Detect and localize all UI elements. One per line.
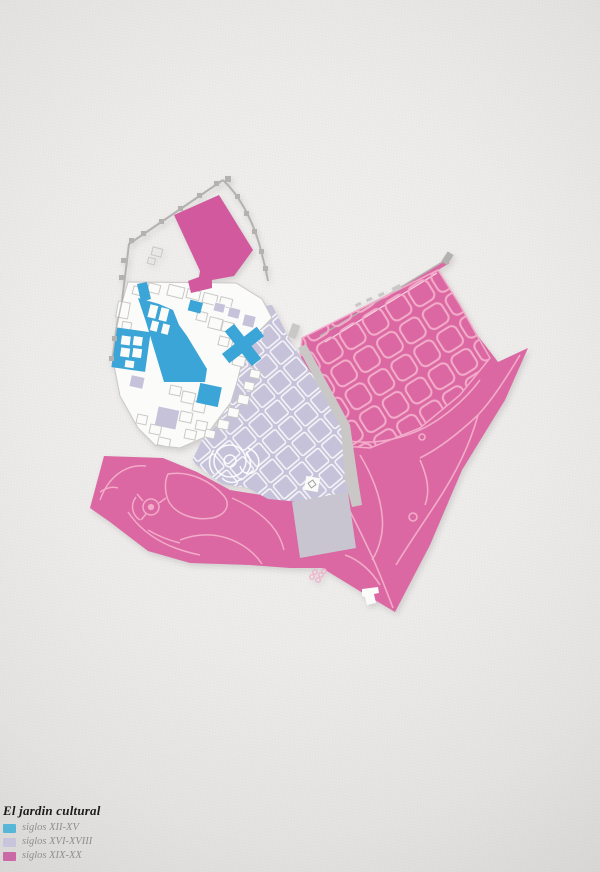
legend-label-xix-xx: siglos XIX-XX	[22, 851, 82, 862]
fortress-block	[111, 328, 150, 372]
legend-swatch-xix-xx	[3, 852, 16, 861]
tree-circles	[310, 569, 327, 583]
legend-label-xvi-xviii: siglos XVI-XVIII	[22, 837, 92, 848]
poster-background: El jardin cultural siglos XII-XV siglos …	[0, 0, 600, 872]
legend-item-xix-xx: siglos XIX-XX	[3, 851, 101, 861]
legend-swatch-xii-xv	[3, 824, 16, 833]
lavender-plain-block	[292, 492, 356, 558]
legend-swatch-xvi-xviii	[3, 838, 16, 847]
monument-square	[304, 476, 320, 492]
magenta-block	[174, 195, 253, 293]
legend: El jardin cultural siglos XII-XV siglos …	[3, 803, 101, 861]
map-poster	[0, 0, 600, 872]
secano-structures	[147, 247, 162, 265]
legend-item-xvi-xviii: siglos XVI-XVIII	[3, 837, 101, 847]
legend-label-xii-xv: siglos XII-XV	[22, 823, 79, 834]
legend-title: El jardin cultural	[3, 803, 101, 819]
legend-item-xii-xv: siglos XII-XV	[3, 823, 101, 833]
